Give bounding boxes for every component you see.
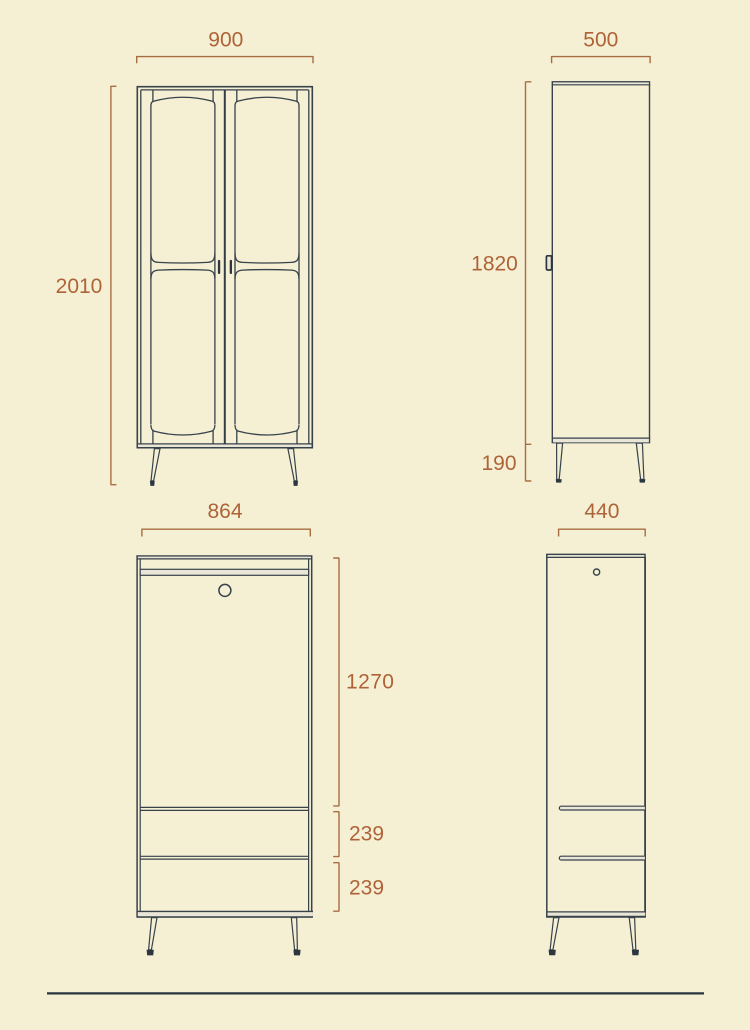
svg-text:1270: 1270 — [346, 671, 394, 694]
svg-text:239: 239 — [349, 823, 384, 846]
svg-text:1820: 1820 — [471, 253, 518, 276]
svg-text:2010: 2010 — [56, 275, 103, 298]
svg-text:440: 440 — [584, 500, 619, 523]
svg-text:239: 239 — [349, 876, 384, 899]
svg-text:190: 190 — [481, 452, 516, 475]
svg-text:864: 864 — [207, 500, 242, 523]
svg-text:900: 900 — [208, 29, 243, 52]
svg-text:500: 500 — [583, 29, 618, 52]
